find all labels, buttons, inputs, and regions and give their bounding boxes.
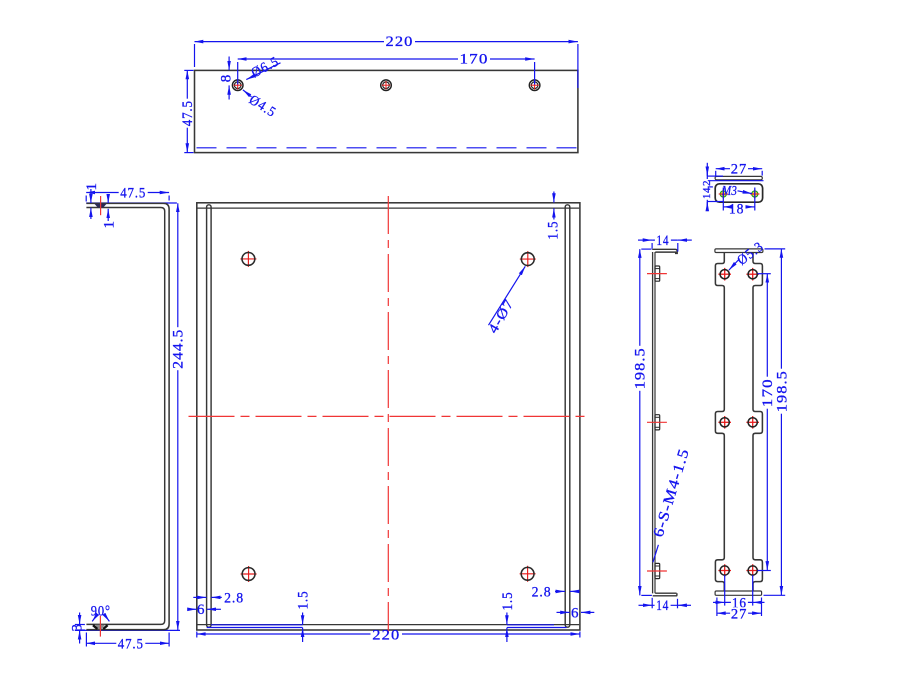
svg-text:47.5: 47.5 bbox=[118, 636, 144, 652]
svg-text:27: 27 bbox=[731, 606, 748, 622]
svg-text:6: 6 bbox=[197, 602, 206, 618]
svg-text:6: 6 bbox=[571, 605, 580, 621]
svg-text:170: 170 bbox=[460, 52, 489, 68]
svg-text:220: 220 bbox=[372, 627, 400, 643]
svg-text:47.5: 47.5 bbox=[120, 185, 146, 201]
svg-text:198.5: 198.5 bbox=[633, 347, 649, 389]
svg-text:1.5: 1.5 bbox=[546, 221, 562, 240]
svg-text:2.8: 2.8 bbox=[224, 590, 244, 606]
svg-text:1.5: 1.5 bbox=[295, 591, 311, 610]
svg-text:8: 8 bbox=[218, 74, 234, 83]
svg-text:220: 220 bbox=[386, 34, 414, 50]
svg-text:14: 14 bbox=[656, 598, 669, 614]
svg-text:244.5: 244.5 bbox=[171, 329, 187, 369]
svg-text:47.5: 47.5 bbox=[180, 100, 196, 126]
svg-text:2: 2 bbox=[701, 180, 713, 186]
svg-text:90°: 90° bbox=[91, 604, 111, 620]
svg-text:18: 18 bbox=[729, 202, 745, 218]
svg-text:1: 1 bbox=[84, 182, 100, 191]
svg-text:14: 14 bbox=[656, 233, 669, 249]
svg-text:1: 1 bbox=[101, 220, 117, 229]
svg-text:14: 14 bbox=[701, 187, 713, 199]
svg-text:3: 3 bbox=[70, 623, 86, 632]
svg-text:1.5: 1.5 bbox=[500, 592, 516, 611]
svg-text:27: 27 bbox=[731, 161, 748, 177]
svg-text:2.8: 2.8 bbox=[532, 584, 552, 600]
svg-text:198.5: 198.5 bbox=[774, 370, 790, 412]
